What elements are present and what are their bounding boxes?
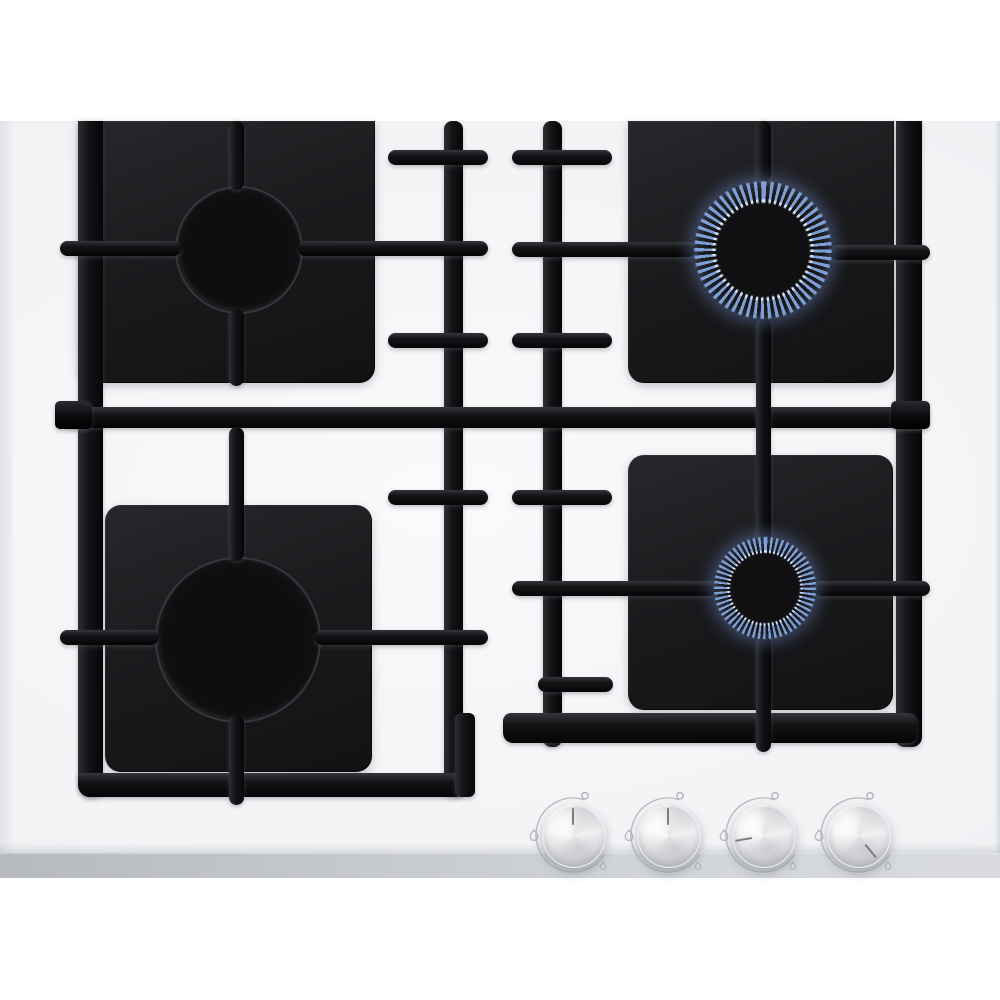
burner-knob-4[interactable] — [808, 785, 908, 885]
knob-dial[interactable] — [827, 804, 891, 868]
grate-finger — [756, 318, 771, 542]
product-photo: BOSCH — [0, 0, 1000, 1000]
knob-pointer — [735, 837, 752, 842]
grate-rail-center — [60, 407, 928, 428]
small-flame-icon — [790, 862, 795, 869]
knob-pointer — [864, 844, 876, 858]
grate-finger — [814, 581, 930, 596]
off-position-ring-icon — [772, 793, 778, 799]
grate-finger — [229, 715, 244, 805]
grate-finger — [830, 245, 930, 260]
off-position-ring-icon — [867, 793, 873, 799]
burner-knob-2[interactable] — [618, 785, 718, 885]
flame-ring-back-right — [693, 180, 833, 320]
flame-outer-ticks — [713, 536, 817, 640]
burner-ring-front-left — [155, 557, 321, 723]
grate-clamp-left — [55, 401, 92, 429]
burner-knob-1[interactable] — [523, 785, 623, 885]
small-flame-icon — [600, 862, 605, 869]
knob-dial[interactable] — [637, 804, 701, 868]
grate-finger — [298, 241, 488, 256]
grate-clamp-right — [891, 401, 930, 429]
hob-surface — [0, 121, 1000, 878]
flame-outer-ticks — [693, 180, 833, 320]
grate-rail-mid-right — [543, 121, 562, 747]
flame-ring-front-right — [713, 536, 817, 640]
off-position-ring-icon — [582, 793, 588, 799]
grate-finger — [60, 630, 159, 645]
grate-step-left — [455, 713, 475, 797]
burner-knob-3[interactable] — [713, 785, 813, 885]
glass-edge-right — [994, 121, 1000, 878]
grate-stub — [388, 490, 488, 505]
grate-finger — [756, 636, 771, 752]
grate-rail-left — [78, 121, 103, 797]
grate-finger — [512, 242, 696, 257]
grate-finger — [60, 241, 181, 256]
grate-stub — [512, 490, 612, 505]
off-position-ring-icon — [677, 793, 683, 799]
small-flame-icon — [885, 862, 890, 869]
grate-rail-right — [896, 121, 922, 747]
grate-rail-bottom-left — [78, 773, 468, 797]
grate-rail-bottom-right — [503, 713, 917, 743]
grate-stub — [538, 677, 613, 692]
knob-dial[interactable] — [542, 804, 606, 868]
grate-finger — [756, 121, 771, 182]
grate-stub — [512, 150, 612, 165]
grate-finger — [229, 427, 244, 561]
grate-stub — [512, 333, 612, 348]
grate-finger — [229, 121, 244, 190]
grate-stub — [388, 333, 488, 348]
grate-finger — [512, 581, 717, 596]
knob-dial[interactable] — [732, 804, 796, 868]
grate-finger — [229, 309, 244, 386]
burner-ring-back-left — [175, 186, 303, 314]
grate-finger — [315, 630, 488, 645]
knob-pointer — [667, 808, 669, 825]
knob-pointer — [572, 808, 574, 825]
grate-stub — [388, 150, 488, 165]
small-flame-icon — [695, 862, 700, 869]
glass-edge-left — [0, 121, 12, 878]
grate-rail-mid-left — [444, 121, 463, 797]
